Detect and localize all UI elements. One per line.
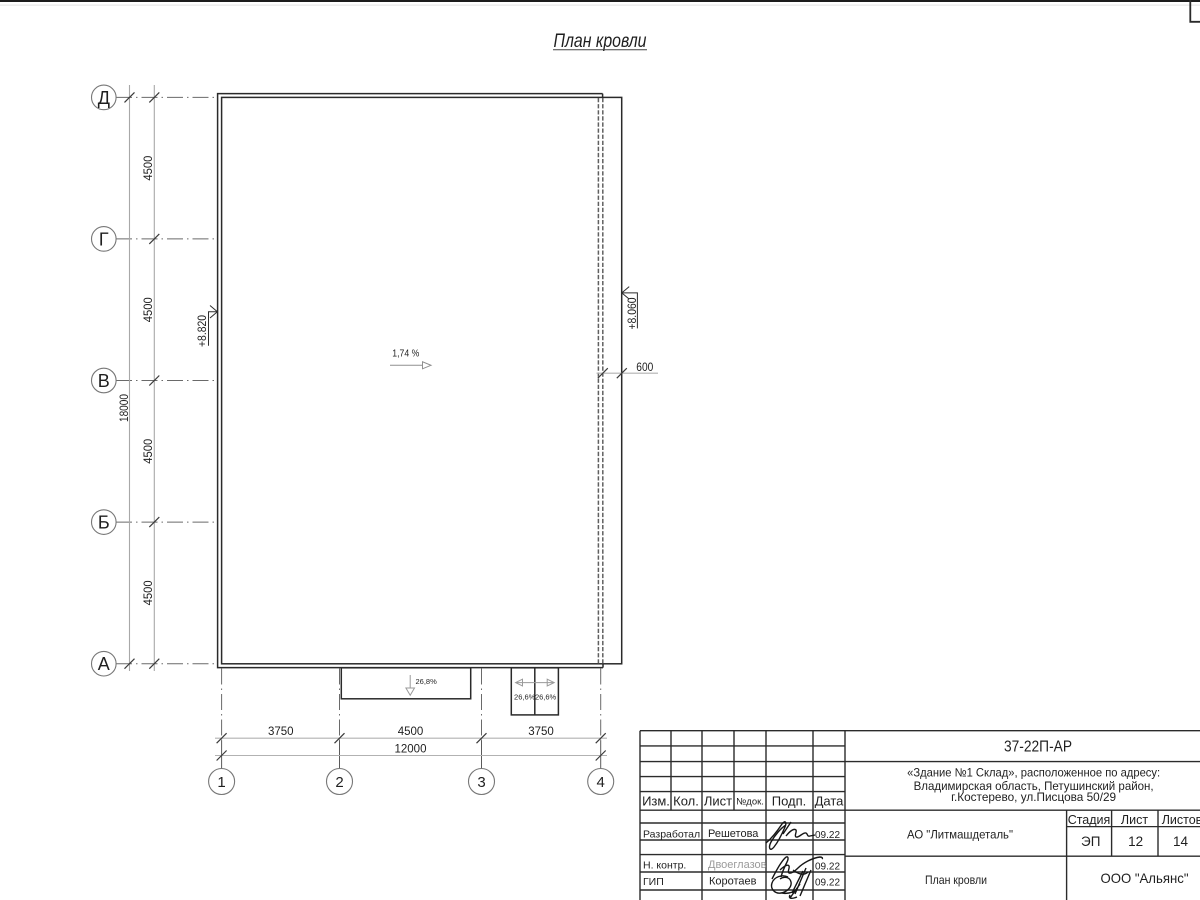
svg-text:Двоеглазов: Двоеглазов: [708, 859, 767, 871]
svg-text:4: 4: [597, 774, 605, 791]
svg-text:26,6%: 26,6%: [514, 693, 536, 702]
svg-text:4500: 4500: [143, 580, 155, 605]
svg-text:АО "Литмашдеталь": АО "Литмашдеталь": [907, 828, 1013, 842]
svg-text:2: 2: [335, 774, 343, 791]
svg-text:+8.820: +8.820: [197, 315, 209, 347]
svg-text:Решетова: Решетова: [708, 828, 759, 840]
svg-text:Разработал: Разработал: [643, 829, 700, 841]
svg-text:ООО "Альянс": ООО "Альянс": [1101, 870, 1189, 886]
svg-text:14: 14: [1173, 834, 1189, 849]
svg-text:26,8%: 26,8%: [416, 677, 438, 686]
svg-text:Подп.: Подп.: [772, 794, 807, 809]
svg-text:4500: 4500: [398, 726, 424, 738]
svg-text:В: В: [98, 371, 110, 391]
svg-text:ГИП: ГИП: [643, 876, 664, 888]
svg-text:Б: Б: [98, 513, 110, 533]
svg-text:3750: 3750: [268, 726, 294, 738]
svg-text:Лист: Лист: [704, 794, 732, 809]
svg-text:Стадия: Стадия: [1068, 813, 1111, 827]
svg-text:37-22П-АР: 37-22П-АР: [1004, 739, 1072, 756]
svg-text:План кровли: План кровли: [554, 31, 647, 52]
svg-text:3750: 3750: [528, 726, 554, 738]
svg-text:09.22: 09.22: [815, 830, 840, 841]
svg-text:Д: Д: [98, 88, 110, 108]
svg-text:4500: 4500: [143, 439, 155, 464]
svg-text:А: А: [98, 654, 110, 674]
svg-text:12000: 12000: [395, 743, 427, 755]
svg-text:26,6%: 26,6%: [535, 693, 557, 702]
svg-text:+8.060: +8.060: [627, 298, 639, 330]
svg-text:г.Костерево, ул.Писцова 50/29: г.Костерево, ул.Писцова 50/29: [951, 790, 1116, 804]
svg-text:09.22: 09.22: [815, 878, 840, 889]
svg-text:Н. контр.: Н. контр.: [643, 860, 686, 872]
svg-text:4500: 4500: [143, 297, 155, 322]
svg-text:12: 12: [1128, 834, 1143, 849]
svg-text:Коротаев: Коротаев: [709, 876, 757, 888]
svg-text:Листов: Листов: [1162, 813, 1200, 827]
svg-text:Дата: Дата: [815, 794, 845, 809]
svg-text:ЭП: ЭП: [1081, 834, 1100, 849]
svg-text:600: 600: [636, 362, 653, 374]
svg-text:Г: Г: [99, 229, 109, 249]
svg-text:Изм.: Изм.: [642, 794, 670, 809]
svg-text:№док.: №док.: [736, 797, 764, 808]
svg-text:4500: 4500: [143, 156, 155, 181]
svg-text:09.22: 09.22: [815, 862, 840, 873]
svg-text:18000: 18000: [119, 394, 131, 422]
svg-text:1: 1: [217, 774, 225, 791]
svg-text:Кол.: Кол.: [673, 794, 699, 809]
svg-text:«Здание №1 Склад», расположенн: «Здание №1 Склад», расположенное по адре…: [907, 766, 1160, 780]
svg-text:План кровли: План кровли: [925, 873, 987, 887]
svg-text:3: 3: [477, 774, 485, 791]
svg-text:Лист: Лист: [1121, 813, 1148, 827]
svg-text:1,74 %: 1,74 %: [392, 348, 419, 359]
